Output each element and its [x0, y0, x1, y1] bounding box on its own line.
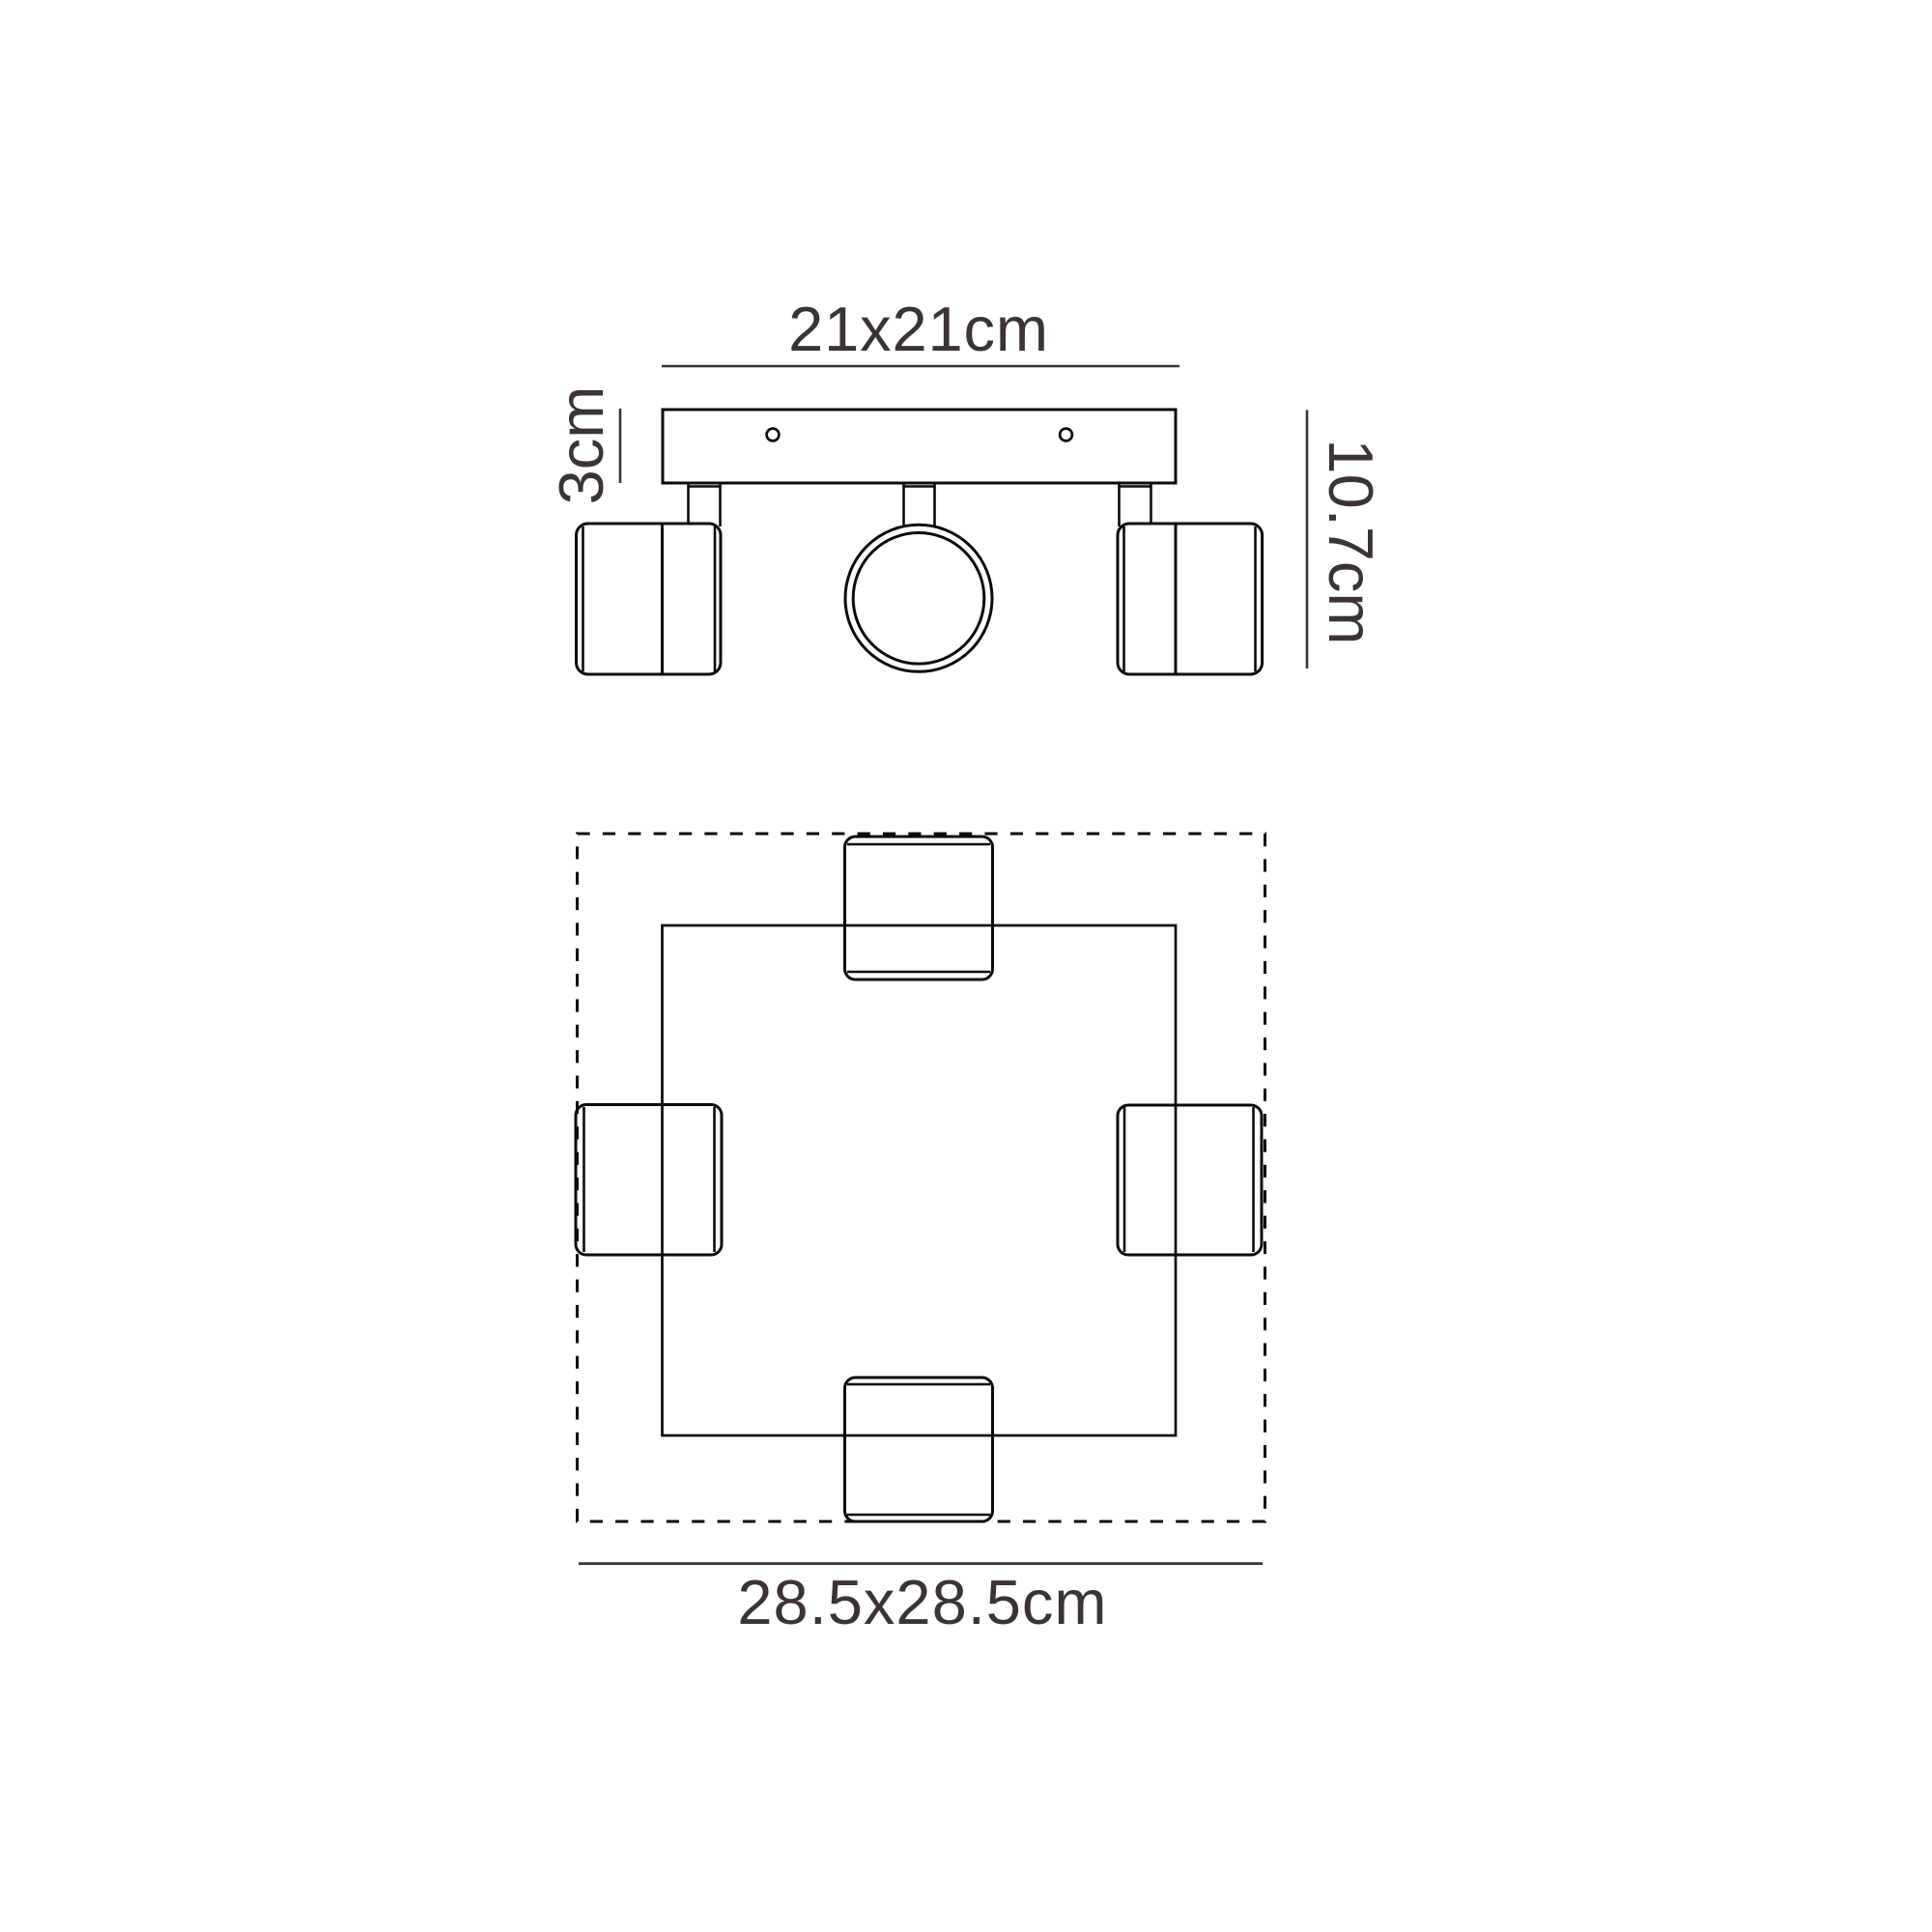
svg-text:3cm: 3cm	[546, 386, 616, 505]
svg-text:10.7cm: 10.7cm	[1316, 439, 1386, 644]
svg-text:21x21cm: 21x21cm	[788, 294, 1049, 364]
svg-text:28.5x28.5cm: 28.5x28.5cm	[737, 1567, 1107, 1637]
